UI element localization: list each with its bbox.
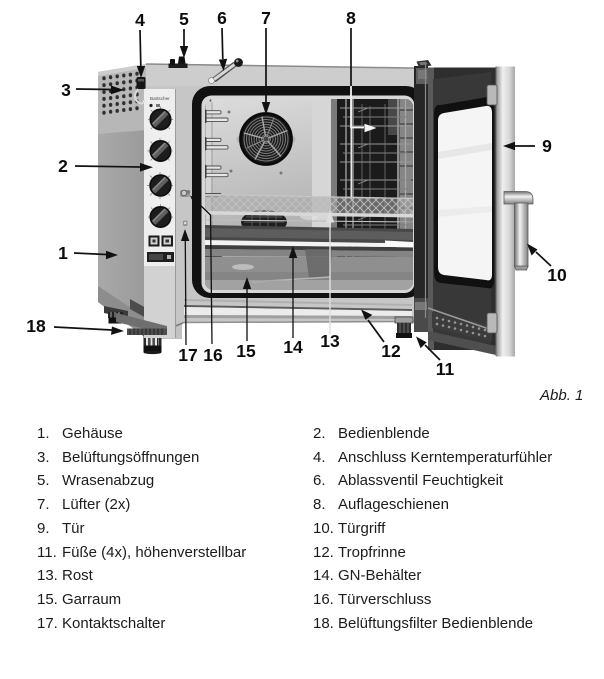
svg-text:4: 4: [135, 10, 145, 30]
svg-text:16: 16: [203, 345, 223, 365]
svg-text:15: 15: [236, 341, 256, 361]
svg-text:Bartscher: Bartscher: [150, 96, 170, 101]
svg-text:18: 18: [26, 316, 46, 336]
svg-text:12: 12: [381, 341, 401, 361]
svg-text:14: 14: [283, 337, 303, 357]
svg-text:1: 1: [58, 243, 68, 263]
svg-text:17: 17: [178, 345, 197, 365]
svg-text:13: 13: [320, 331, 340, 351]
svg-text:3: 3: [61, 80, 71, 100]
svg-text:6: 6: [217, 8, 227, 28]
svg-text:10: 10: [547, 265, 567, 285]
svg-text:5: 5: [179, 9, 189, 29]
svg-text:9: 9: [542, 136, 552, 156]
svg-text:2: 2: [58, 156, 68, 176]
svg-text:8: 8: [346, 8, 356, 28]
svg-text:7: 7: [261, 8, 271, 28]
svg-text:11: 11: [436, 359, 455, 379]
